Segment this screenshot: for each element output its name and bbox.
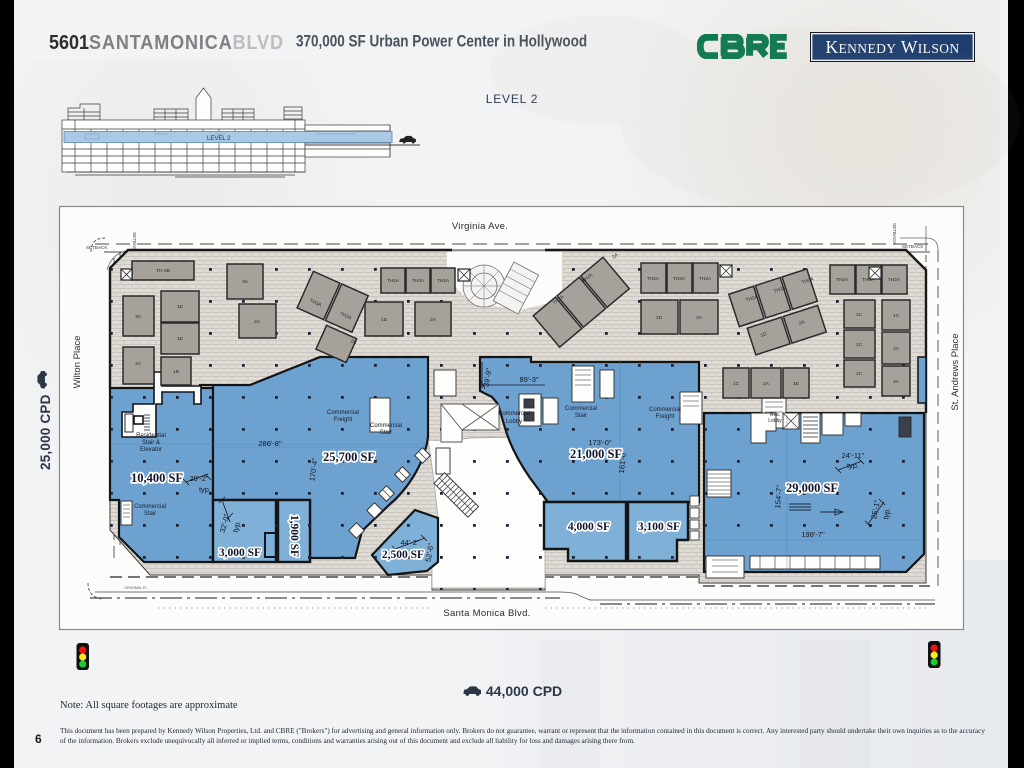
svg-text:3A: 3A xyxy=(242,279,249,285)
svg-text:Freight: Freight xyxy=(656,414,675,420)
svg-text:2A: 2A xyxy=(696,315,703,321)
svg-text:2,500 SF: 2,500 SF xyxy=(382,549,424,561)
svg-text:Commercial: Commercial xyxy=(649,407,681,413)
svg-text:3,000 SF: 3,000 SF xyxy=(219,547,261,559)
svg-text:Stair: Stair xyxy=(380,430,392,436)
svg-text:Freight: Freight xyxy=(334,417,353,423)
svg-text:1C: 1C xyxy=(733,381,740,387)
svg-text:typ.: typ. xyxy=(199,485,211,494)
svg-text:TH2A: TH2A xyxy=(699,276,712,282)
svg-text:25,700 SF: 25,700 SF xyxy=(323,450,375,464)
svg-text:173'-0": 173'-0" xyxy=(588,438,612,447)
svg-text:Stair: Stair xyxy=(144,511,156,517)
svg-text:TH2A: TH2A xyxy=(647,276,660,282)
svg-text:Lobby: Lobby xyxy=(506,419,522,425)
svg-text:21,000 SF: 21,000 SF xyxy=(570,447,622,461)
svg-text:TH 3B: TH 3B xyxy=(156,268,170,274)
svg-text:286'-8": 286'-8" xyxy=(258,439,282,448)
svg-text:1D: 1D xyxy=(381,317,388,323)
svg-text:2A: 2A xyxy=(893,346,900,352)
svg-text:Virginia Ave.: Virginia Ave. xyxy=(452,221,508,232)
svg-text:SETBACK: SETBACK xyxy=(902,244,924,249)
svg-text:24'-11": 24'-11" xyxy=(842,451,865,460)
svg-text:Stair &: Stair & xyxy=(142,440,160,446)
svg-text:198'-7": 198'-7" xyxy=(801,530,825,539)
svg-text:1E: 1E xyxy=(177,304,183,310)
svg-text:1C: 1C xyxy=(856,371,863,377)
svg-text:2A: 2A xyxy=(430,317,437,323)
svg-text:1B: 1B xyxy=(173,369,179,375)
svg-text:Lobby: Lobby xyxy=(768,418,782,424)
svg-text:3,100 SF: 3,100 SF xyxy=(638,521,680,533)
svg-text:3A: 3A xyxy=(135,314,142,320)
svg-text:Commercial: Commercial xyxy=(134,504,166,510)
svg-text:1C: 1C xyxy=(856,312,863,318)
svg-text:1C: 1C xyxy=(856,342,863,348)
svg-text:2A: 2A xyxy=(893,379,900,385)
svg-text:SETBACK: SETBACK xyxy=(892,223,897,245)
svg-text:TH2A: TH2A xyxy=(888,277,901,283)
svg-text:1D: 1D xyxy=(656,315,663,321)
svg-text:1,900 SF: 1,900 SF xyxy=(288,515,300,557)
svg-text:1E: 1E xyxy=(793,381,799,387)
svg-text:TH2A: TH2A xyxy=(437,278,450,284)
svg-text:Commercial: Commercial xyxy=(327,410,359,416)
svg-text:SETBACK: SETBACK xyxy=(86,245,108,250)
svg-text:Elevator: Elevator xyxy=(140,447,162,453)
svg-text:Commercial: Commercial xyxy=(370,423,402,429)
svg-text:Wilton Place: Wilton Place xyxy=(72,336,83,389)
svg-text:10,400 SF: 10,400 SF xyxy=(131,471,183,485)
svg-text:25,000 CPD: 25,000 CPD xyxy=(38,394,53,470)
svg-text:Commercial: Commercial xyxy=(498,411,530,417)
svg-text:TH2A: TH2A xyxy=(387,278,400,284)
svg-text:typ.: typ. xyxy=(847,461,859,470)
svg-text:29,000 SF: 29,000 SF xyxy=(786,481,838,495)
svg-text:ORIGINAL FL: ORIGINAL FL xyxy=(124,586,148,590)
svg-text:89'-3": 89'-3" xyxy=(519,375,538,384)
svg-text:Stair: Stair xyxy=(575,413,587,419)
svg-text:1C: 1C xyxy=(893,313,900,319)
svg-text:TH3A: TH3A xyxy=(673,276,686,282)
svg-text:TH3A: TH3A xyxy=(412,278,425,284)
svg-text:2A: 2A xyxy=(763,381,770,387)
svg-text:2A: 2A xyxy=(135,361,142,367)
svg-text:Commercial: Commercial xyxy=(565,406,597,412)
svg-text:2A: 2A xyxy=(254,319,261,325)
svg-text:St. Andrews Place: St. Andrews Place xyxy=(950,333,961,410)
svg-text:4,000 SF: 4,000 SF xyxy=(568,521,610,533)
svg-text:Residential: Residential xyxy=(136,433,166,439)
svg-text:1E: 1E xyxy=(177,336,183,342)
svg-text:Santa Monica Blvd.: Santa Monica Blvd. xyxy=(443,608,530,619)
svg-text:TH2A: TH2A xyxy=(836,277,849,283)
